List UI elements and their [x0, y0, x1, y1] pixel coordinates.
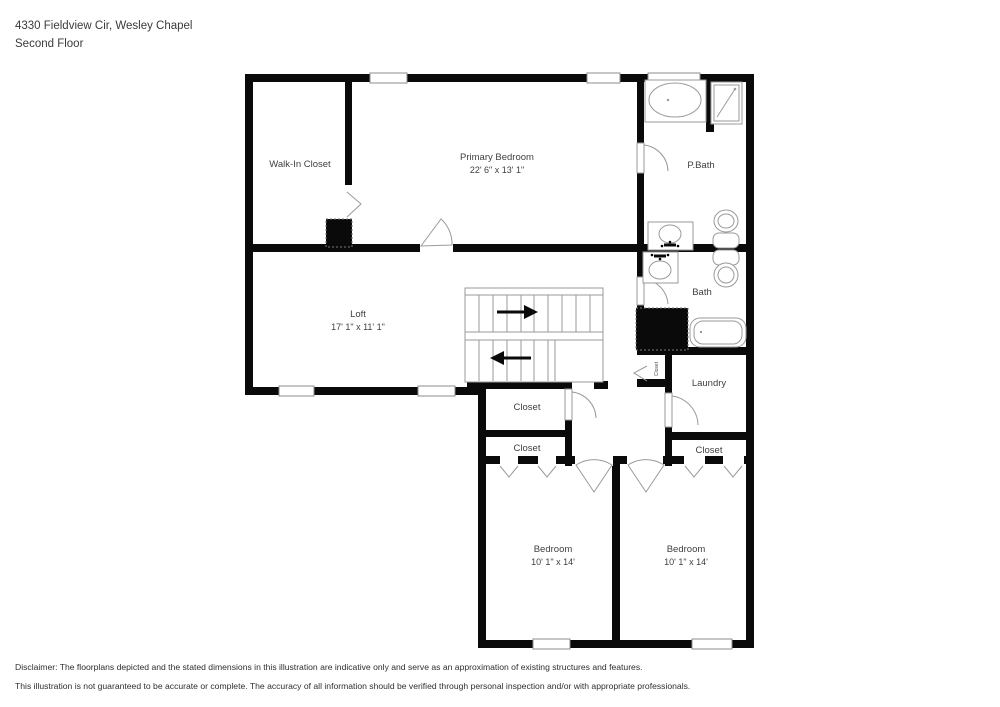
room-label-bedroom-left: Bedroom	[534, 544, 573, 555]
door-laundry	[672, 396, 698, 425]
door-bedroom-right	[628, 460, 664, 492]
opening-chevron-walkin	[347, 192, 361, 217]
room-label-closet-right: Closet	[696, 445, 723, 456]
stairs	[465, 288, 603, 382]
room-label-closet-lower: Closet	[514, 443, 541, 454]
room-label-walk-in-closet: Walk-In Closet	[269, 159, 331, 170]
room-label-bath: Bath	[692, 287, 712, 298]
room-dims-bedroom-left: 10' 1" x 14'	[531, 557, 575, 567]
stair-landing	[465, 332, 603, 340]
window	[587, 73, 620, 83]
room-dims-loft: 17' 1" x 11' 1"	[331, 322, 385, 332]
closet-door-chevron	[724, 466, 742, 477]
door-primary-bedroom	[421, 219, 452, 246]
window	[692, 639, 732, 649]
room-label-pbath: P.Bath	[687, 160, 714, 171]
closet-door-chevron	[685, 466, 703, 477]
room-dims-bedroom-right: 10' 1" x 14'	[664, 557, 708, 567]
door-pbath	[644, 145, 668, 171]
toilet-icon	[713, 210, 739, 248]
door-bedroom-left	[576, 460, 612, 492]
room-label-bedroom-right: Bedroom	[667, 544, 706, 555]
garden-tub-icon	[645, 80, 706, 122]
door-hall-closet	[572, 392, 596, 418]
sink-icon	[648, 222, 693, 250]
window	[418, 386, 455, 396]
sink-icon	[643, 252, 678, 283]
toilet-icon	[713, 250, 739, 287]
disclaimer-line-1: Disclaimer: The floorplans depicted and …	[15, 663, 643, 672]
floor-plan: Walk-In Closet Primary Bedroom 22' 6" x …	[0, 0, 1000, 707]
room-label-closet-small: Closet	[654, 361, 660, 376]
chase-bath	[636, 308, 688, 350]
room-label-loft: Loft	[350, 309, 366, 320]
room-label-primary-bedroom: Primary Bedroom	[460, 152, 534, 163]
closet-door-chevron	[538, 466, 556, 477]
window	[279, 386, 314, 396]
room-dims-primary-bedroom: 22' 6" x 13' 1"	[470, 165, 524, 175]
closet-door-chevron	[500, 466, 518, 477]
chase-walkin-closet	[326, 219, 352, 247]
disclaimer-line-2: This illustration is not guaranteed to b…	[15, 682, 690, 691]
shower-icon	[711, 82, 742, 124]
window	[533, 639, 570, 649]
room-label-laundry: Laundry	[692, 378, 727, 389]
room-label-closet-upper: Closet	[514, 402, 541, 413]
bathtub-icon	[690, 318, 746, 347]
window	[370, 73, 407, 83]
